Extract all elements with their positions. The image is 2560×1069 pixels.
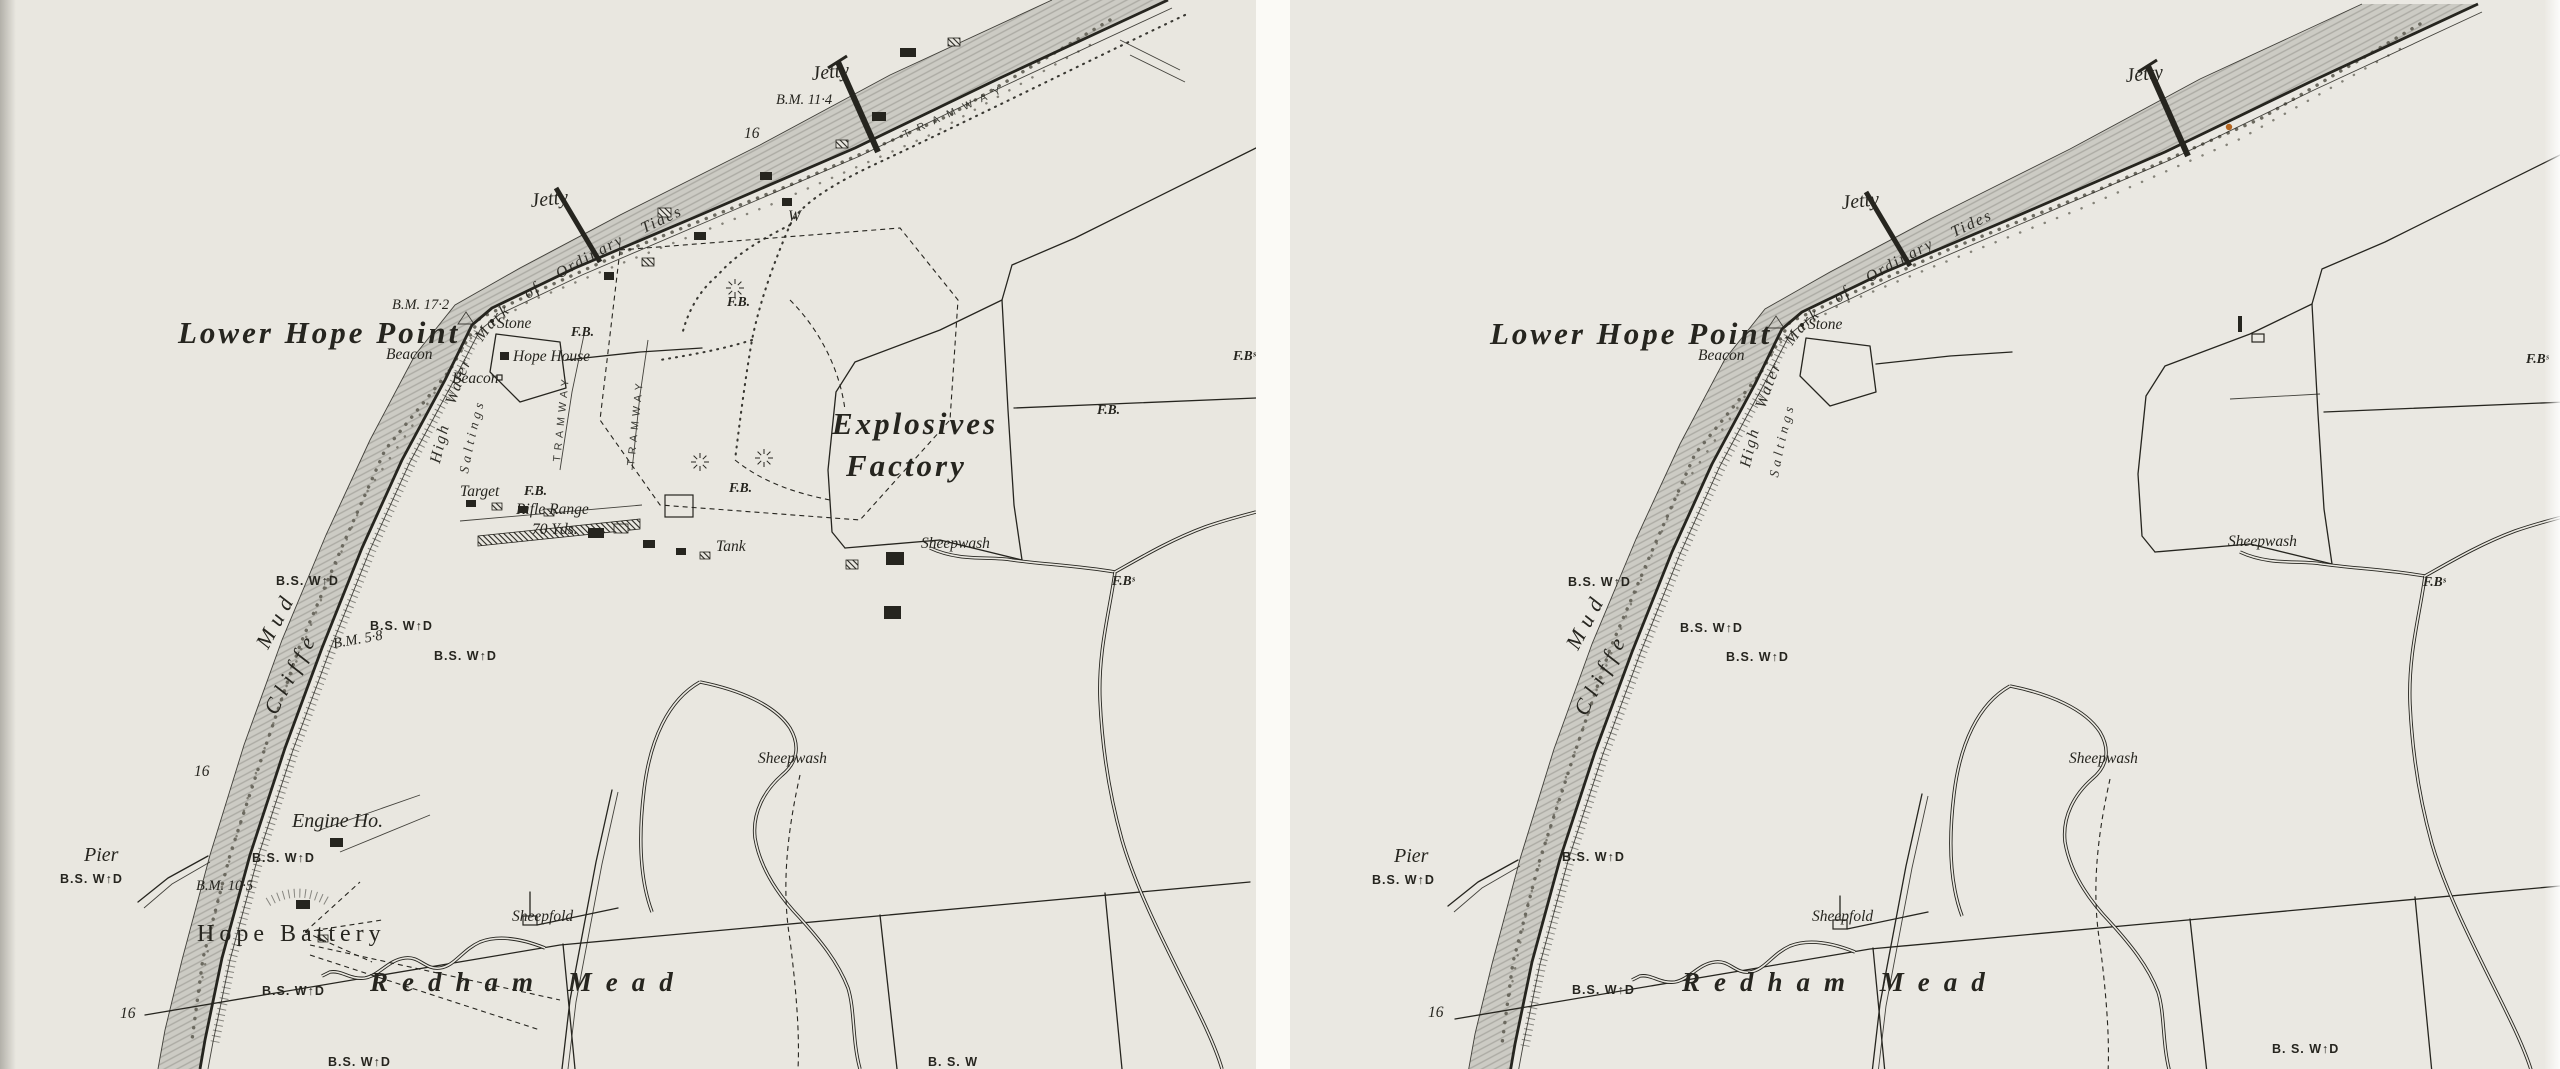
- map-label: Stone: [1808, 316, 1843, 333]
- map-label: W: [788, 208, 803, 225]
- paper-fleck: [2226, 124, 2232, 130]
- map-label: Stone: [497, 315, 532, 332]
- map-label: B.S. W↑D: [1572, 983, 1635, 997]
- map-label: Lower Hope Point: [1489, 316, 1772, 351]
- map-label: B.S. W↑D: [1562, 850, 1625, 864]
- map-label: Lower Hope Point: [177, 315, 460, 350]
- map-label: B.S. W↑D: [328, 1055, 391, 1069]
- map-label: Redham Mead: [369, 967, 687, 997]
- panel-gutter: [1256, 0, 1290, 1069]
- map-label: Sheepwash: [921, 535, 990, 552]
- map-label: B.M. 17·2: [392, 297, 449, 313]
- scanned-map-comparison: JettyB.M. 11·4TRAMWAY16JettyB.M. 17·2Low…: [0, 0, 2560, 1069]
- map-label: 16: [744, 125, 760, 142]
- map-label: 70 Yds.: [532, 521, 578, 538]
- map-label: F.Bˢ: [1111, 573, 1136, 588]
- map-label: Beacon: [452, 370, 499, 387]
- map-label: Sheepfold: [512, 908, 573, 925]
- map-label: B.M. 11·4: [776, 92, 832, 108]
- map-panel-censored: JettyJettyLower Hope PointBeaconStoneShe…: [1290, 0, 2560, 1069]
- map-label: Target: [460, 483, 500, 500]
- map-label: Redham Mead: [1681, 967, 1999, 997]
- map-label: B. S. W↑D: [2272, 1042, 2339, 1056]
- map-label: F.B.: [1096, 402, 1120, 417]
- map-label: Sheepfold: [1812, 908, 1873, 925]
- map-label: B.S. W↑D: [252, 851, 315, 865]
- map-label: Sheepwash: [758, 750, 827, 767]
- map-label: Factory: [845, 448, 967, 483]
- map-label: B. S. W: [928, 1055, 978, 1069]
- map-label: F.Bˢ: [2525, 351, 2550, 366]
- map-label: Engine Ho.: [291, 810, 383, 832]
- map-label: B.S. W↑D: [1568, 575, 1631, 589]
- map-label: Jetty: [1840, 188, 1880, 214]
- map-label: Beacon: [1698, 347, 1745, 364]
- map-censored-svg: JettyJettyLower Hope PointBeaconStoneShe…: [1290, 0, 2560, 1069]
- paper-background: [1290, 0, 2560, 1069]
- paper-fleck-layer: [2226, 124, 2232, 130]
- map-label: F.B.: [728, 480, 752, 495]
- map-label: 16: [1428, 1004, 1444, 1021]
- map-label: Sheepwash: [2228, 533, 2297, 550]
- map-panel-original: JettyB.M. 11·4TRAMWAY16JettyB.M. 17·2Low…: [0, 0, 1256, 1069]
- map-label: F.Bˢ: [1232, 348, 1256, 363]
- map-label: B.S. W↑D: [1726, 650, 1789, 664]
- map-label: B.M. 10·5: [196, 878, 253, 894]
- map-label: Jetty: [2124, 61, 2164, 87]
- map-label: F.Bˢ: [2422, 574, 2447, 589]
- map-label: Pier: [1393, 845, 1429, 867]
- map-label: F.B.: [726, 294, 750, 309]
- map-label: B.S. W↑D: [276, 574, 339, 588]
- map-label: Rifle Range: [515, 501, 589, 518]
- map-label: 16: [194, 763, 210, 780]
- map-label: Jetty: [529, 186, 569, 212]
- map-label: F.B.: [570, 324, 594, 339]
- map-label: Pier: [83, 844, 119, 866]
- map-label: B.S. W↑D: [1372, 873, 1435, 887]
- map-label: B.S. W↑D: [434, 649, 497, 663]
- map-label: Beacon: [386, 346, 433, 363]
- map-label: B.S. W↑D: [60, 872, 123, 886]
- map-label: Explosives: [831, 406, 998, 441]
- map-label: F.B.: [523, 483, 547, 498]
- map-label: 16: [120, 1005, 136, 1022]
- map-label: Sheepwash: [2069, 750, 2138, 767]
- paper-background: [0, 0, 1256, 1069]
- map-label: Hope House: [512, 348, 590, 365]
- map-label: B.S. W↑D: [262, 984, 325, 998]
- map-label: Hope Battery: [197, 921, 386, 947]
- map-label: B.S. W↑D: [1680, 621, 1743, 635]
- map-original-svg: JettyB.M. 11·4TRAMWAY16JettyB.M. 17·2Low…: [0, 0, 1256, 1069]
- map-label: Jetty: [810, 59, 850, 85]
- map-label: Tank: [716, 538, 747, 555]
